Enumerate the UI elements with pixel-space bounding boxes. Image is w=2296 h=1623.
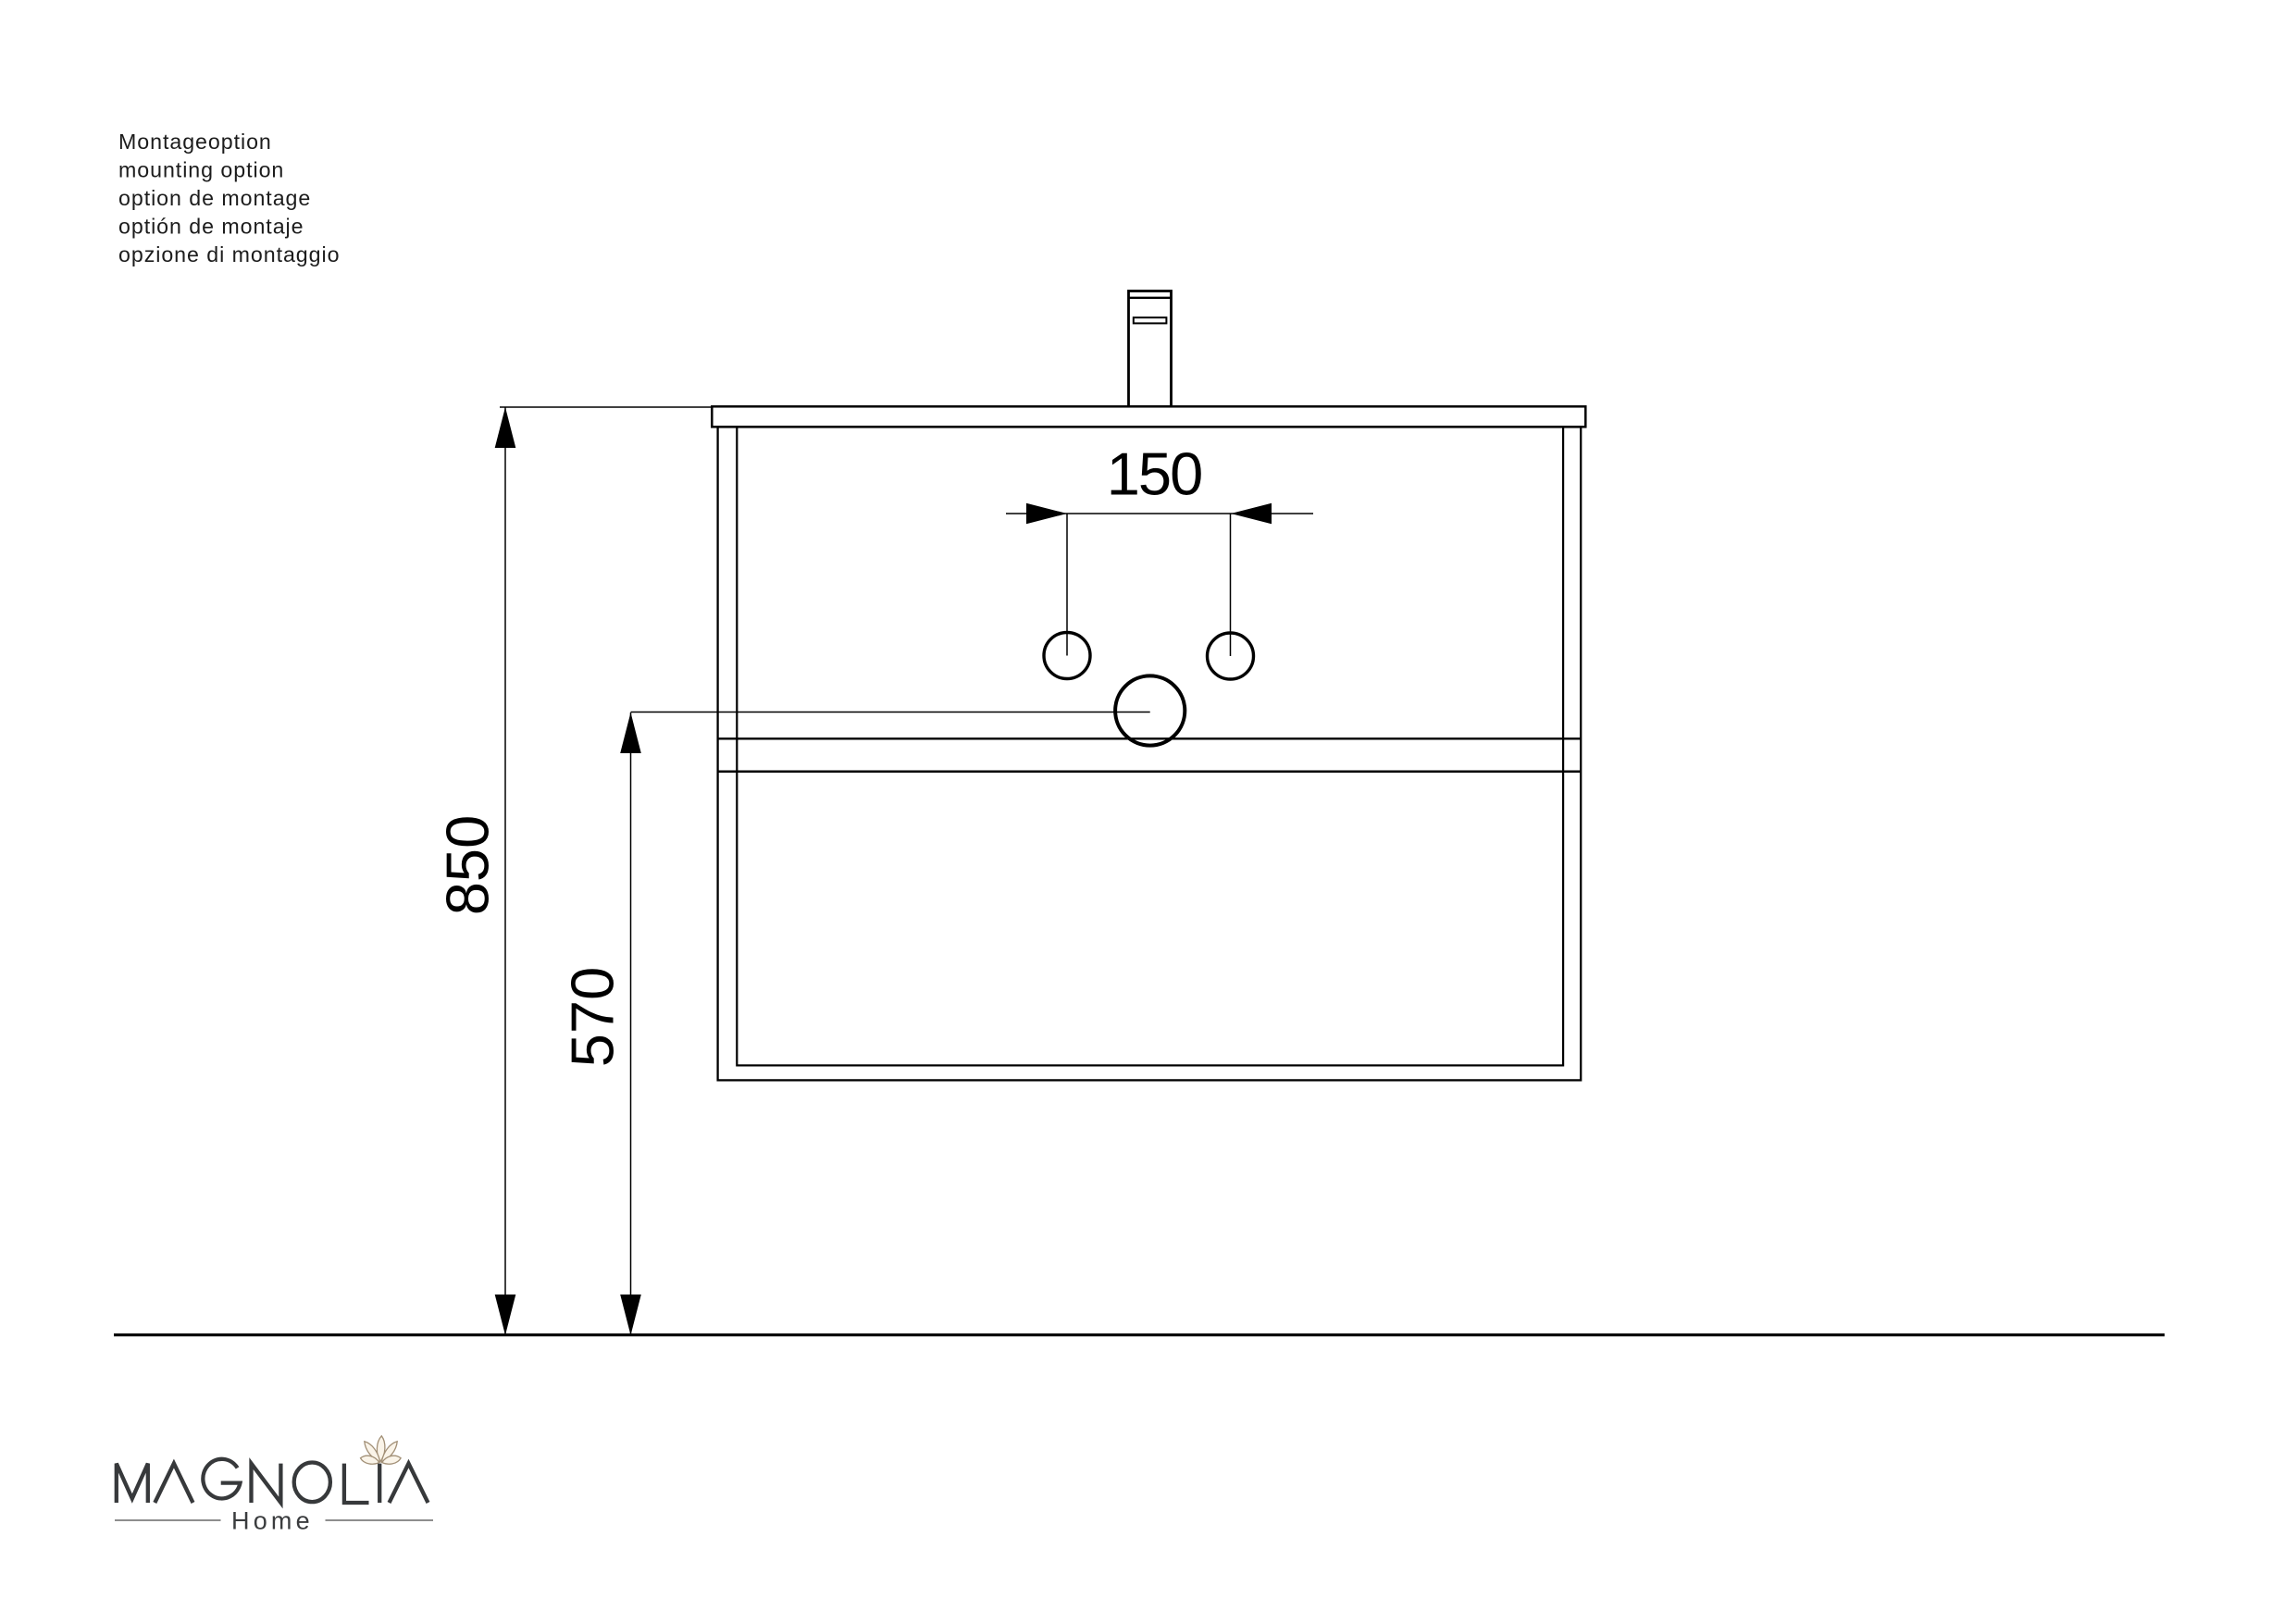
svg-text:mounting option: mounting option bbox=[118, 158, 284, 182]
svg-text:570: 570 bbox=[559, 967, 627, 1067]
svg-text:Montageoption: Montageoption bbox=[118, 130, 272, 154]
svg-text:150: 150 bbox=[1107, 440, 1201, 508]
svg-text:850: 850 bbox=[433, 815, 501, 915]
svg-text:option de montage: option de montage bbox=[118, 186, 311, 210]
svg-text:opzione di montaggio: opzione di montaggio bbox=[118, 242, 340, 266]
svg-text:Home: Home bbox=[231, 1507, 314, 1535]
svg-text:optión de montaje: optión de montaje bbox=[118, 215, 304, 239]
